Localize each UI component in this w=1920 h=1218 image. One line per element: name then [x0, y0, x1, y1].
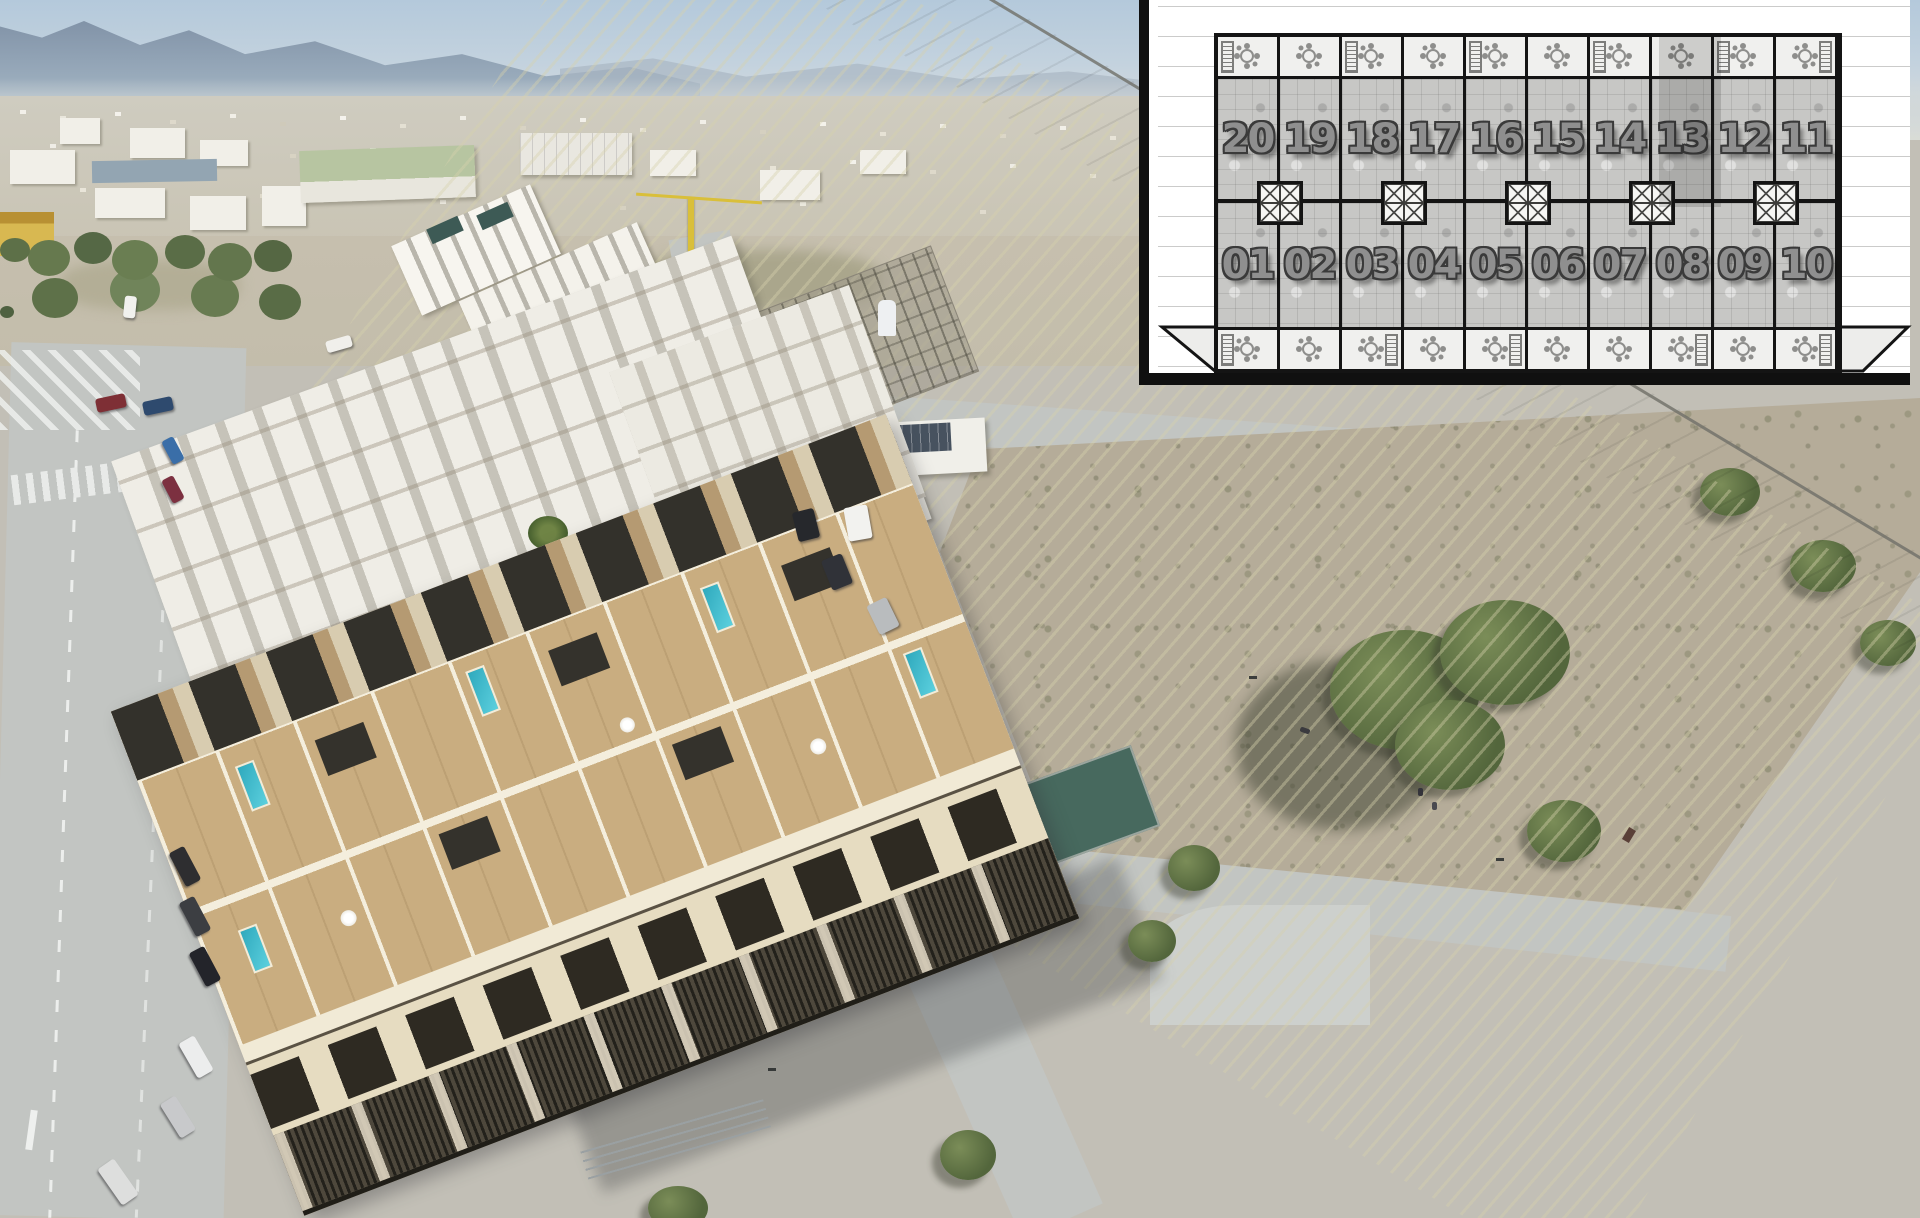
unit-number: 06 — [1532, 245, 1584, 285]
unit-number: 14 — [1594, 119, 1646, 159]
terrace-cell — [1218, 327, 1277, 369]
terrace-cell — [1528, 327, 1587, 369]
terrace-cell — [1466, 37, 1525, 79]
stairs-icon — [1819, 334, 1832, 366]
table-icon — [1736, 49, 1750, 63]
terrace-cell — [1776, 327, 1835, 369]
table-icon — [1302, 49, 1316, 63]
table-icon — [1426, 49, 1440, 63]
unit-number: 11 — [1780, 119, 1832, 159]
unit-number: 01 — [1222, 245, 1274, 285]
hatched-median — [0, 350, 140, 430]
table-icon — [1612, 342, 1626, 356]
stairs-icon — [1345, 41, 1358, 73]
terrace-cell — [1404, 327, 1463, 369]
stairs-icon — [1469, 41, 1482, 73]
town-building — [10, 150, 75, 184]
street-tree — [1168, 845, 1220, 891]
stairs-icon — [1819, 41, 1832, 73]
table-icon — [1612, 49, 1626, 63]
terrace-cell — [1590, 327, 1649, 369]
stairs-icon — [1385, 334, 1398, 366]
terrace-cell — [1218, 37, 1277, 79]
table-icon — [1240, 49, 1254, 63]
street-tree — [940, 1130, 996, 1180]
street-tree — [1128, 920, 1176, 962]
unit-number: 19 — [1284, 119, 1336, 159]
terrace-cell — [1652, 327, 1711, 369]
terrace-cell — [1342, 37, 1401, 79]
industrial-shed — [92, 159, 217, 183]
stair-core-icon — [1505, 181, 1551, 225]
table-icon — [1550, 342, 1564, 356]
street-tree — [648, 1186, 708, 1218]
table-icon — [1674, 342, 1688, 356]
white-van — [123, 295, 137, 318]
terrace-cell — [1714, 327, 1773, 369]
town-building — [60, 118, 100, 144]
unit-number: 09 — [1718, 245, 1770, 285]
table-icon — [1736, 342, 1750, 356]
table-icon — [1364, 49, 1378, 63]
table-icon — [1426, 342, 1440, 356]
stair-core-icon — [1257, 181, 1303, 225]
table-icon — [1488, 49, 1502, 63]
unit-number: 07 — [1594, 245, 1646, 285]
terrace-cell — [1714, 37, 1773, 79]
town-building — [190, 196, 246, 230]
stair-core-icon — [1753, 181, 1799, 225]
unit-number: 02 — [1284, 245, 1336, 285]
table-icon — [1364, 342, 1378, 356]
park-trees — [0, 238, 30, 262]
field-patch — [60, 260, 240, 310]
street-lamp — [1500, 860, 1502, 886]
pedestrian — [1432, 802, 1437, 810]
water-tower — [878, 300, 896, 336]
unit-number: 03 — [1346, 245, 1398, 285]
unit-number: 10 — [1780, 245, 1832, 285]
distant-houses — [20, 110, 26, 114]
terrace-cell — [1528, 37, 1587, 79]
stairs-icon — [1221, 41, 1234, 73]
terrace-cell — [1404, 37, 1463, 79]
floorplan-inset: 20 01 19 02 18 03 17 04 — [1139, 0, 1910, 385]
terrace-cell — [1590, 37, 1649, 79]
town-building — [130, 128, 185, 158]
table-icon — [1550, 49, 1564, 63]
unit-number: 18 — [1346, 119, 1398, 159]
stairs-icon — [1509, 334, 1522, 366]
table-icon — [1798, 342, 1812, 356]
town-building — [262, 186, 306, 226]
unit-number: 12 — [1718, 119, 1770, 159]
unit-number: 16 — [1470, 119, 1522, 159]
unit-14-highlight — [1659, 37, 1721, 207]
street-lamp — [1253, 678, 1255, 704]
stairs-icon — [1221, 334, 1234, 366]
stairs-icon — [1695, 334, 1708, 366]
unit-number: 17 — [1408, 119, 1460, 159]
terrace-cell — [1342, 327, 1401, 369]
unit-number: 08 — [1656, 245, 1708, 285]
table-icon — [1240, 342, 1254, 356]
stair-core-icon — [1381, 181, 1427, 225]
pedestrian — [1418, 788, 1423, 796]
town-building — [95, 188, 165, 218]
table-icon — [1302, 342, 1316, 356]
table-icon — [1488, 342, 1502, 356]
unit-number: 20 — [1222, 119, 1274, 159]
street-tree-row — [0, 306, 14, 318]
table-icon — [1798, 49, 1812, 63]
terrace-cell — [1280, 37, 1339, 79]
terrace-cell — [1466, 327, 1525, 369]
unit-number: 04 — [1408, 245, 1460, 285]
terrace-cell — [1280, 327, 1339, 369]
stairs-icon — [1593, 41, 1606, 73]
terrace-cell — [1776, 37, 1835, 79]
unit-number: 15 — [1532, 119, 1584, 159]
aerial-development-photo: 20 01 19 02 18 03 17 04 — [0, 0, 1920, 1218]
unit-number: 05 — [1470, 245, 1522, 285]
